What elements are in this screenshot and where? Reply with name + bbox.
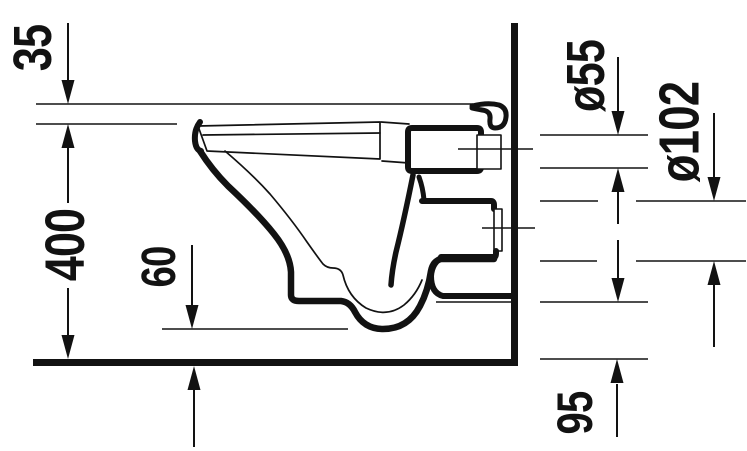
dim-95-arrows (611, 359, 624, 437)
trap-weir-line (391, 175, 413, 285)
dim-60-arrows (186, 245, 201, 447)
toilet-seat (198, 122, 409, 163)
flush-spigot (477, 135, 501, 169)
reference-lines (36, 104, 746, 359)
dim-span-arrows (612, 168, 625, 302)
dimension-arrows (62, 23, 721, 447)
dim-outlet-height-label: 95 (550, 392, 600, 435)
outlet-elbow (431, 257, 511, 296)
dim-flush-diameter-label: ø55 (559, 40, 613, 112)
dim-bowl-clearance-label: 60 (136, 246, 184, 287)
bowl-inner-line (225, 151, 422, 312)
flush-bend (472, 104, 506, 128)
dim-outlet-diameter-label: ø102 (652, 82, 709, 183)
drawing-linework (0, 0, 747, 451)
toilet-outline (195, 104, 511, 329)
dim-35-arrows (62, 23, 75, 104)
wall-and-floor (33, 23, 518, 366)
back-joint-line (419, 177, 424, 200)
rim-front (195, 122, 201, 151)
dim-rim-height-label: 400 (37, 209, 93, 281)
outlet-connector (422, 201, 511, 296)
dim-seat-offset-label: 35 (6, 25, 60, 71)
technical-drawing-canvas: 35 400 60 ø55 ø102 95 (0, 0, 747, 451)
